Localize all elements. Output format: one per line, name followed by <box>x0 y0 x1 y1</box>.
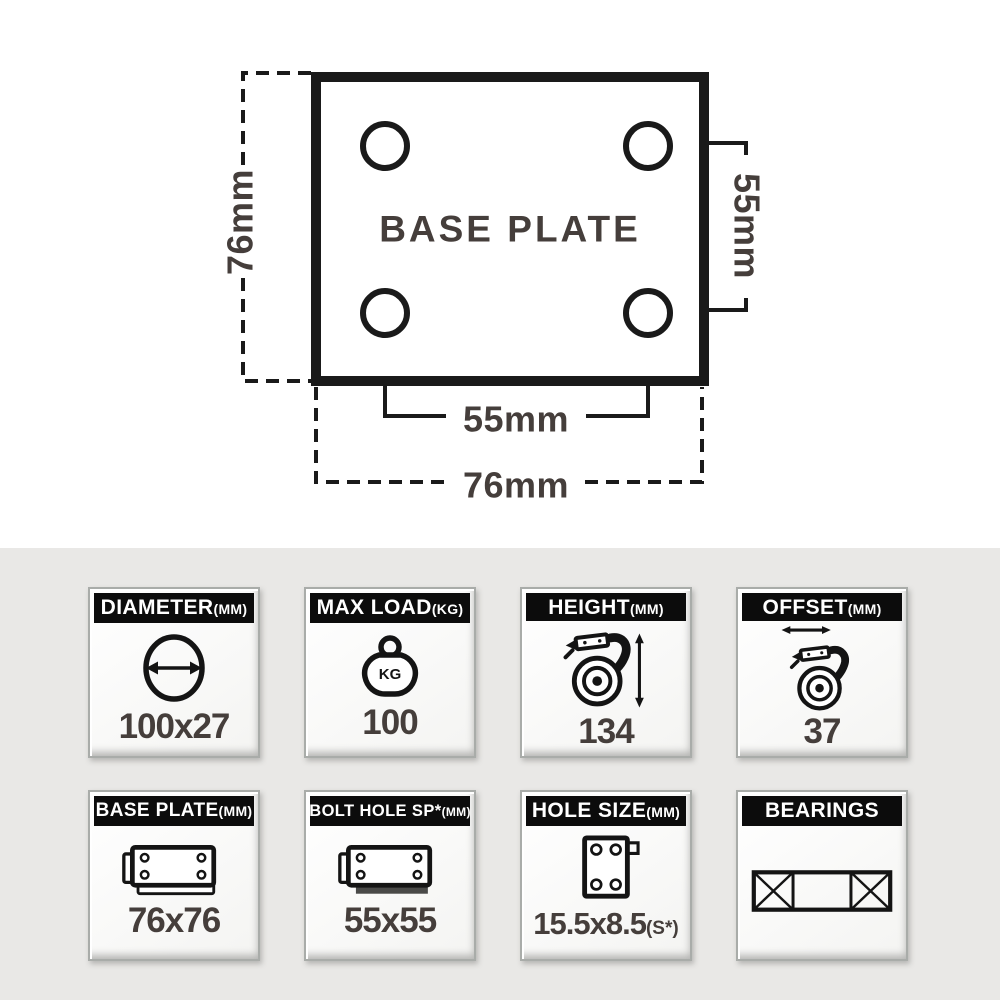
base-plate-diagram: BASE PLATE 76mm 55mm 55mm 76mm <box>0 0 1000 548</box>
left-dimension-label: 76mm <box>220 169 261 275</box>
card-value: 100x27 <box>119 709 230 745</box>
card-header: BEARINGS <box>742 796 902 826</box>
card-header: MAX LOAD(KG) <box>310 593 470 623</box>
hole-size-value: 15.5x8.5 <box>533 906 646 942</box>
bolt-hole-bottom-left <box>363 291 407 335</box>
card-value: 134 <box>578 714 633 750</box>
spec-card-bolt-hole-spacing: BOLT HOLE SP*(MM) 55x55 <box>304 790 476 961</box>
spec-card-offset: OFFSET(MM) <box>736 587 908 758</box>
bolt-hole-top-right <box>626 124 670 168</box>
hole-size-suffix: (S*) <box>646 911 679 947</box>
card-value: 76x76 <box>128 903 220 939</box>
card-title: DIAMETER <box>101 593 214 623</box>
card-body: KG 100 <box>306 623 474 756</box>
card-title: BASE PLATE <box>96 796 219 826</box>
plate-title: BASE PLATE <box>379 209 641 250</box>
spec-card-height: HEIGHT(MM) <box>520 587 692 758</box>
card-body: 55x55 <box>306 826 474 959</box>
card-value: 37 <box>804 714 841 750</box>
card-header: BOLT HOLE SP*(MM) <box>310 796 470 826</box>
bearing-icon <box>751 869 893 913</box>
card-title: OFFSET <box>762 593 847 621</box>
card-value: 15.5x8.5(S*) <box>533 906 678 947</box>
card-header: HEIGHT(MM) <box>526 593 686 621</box>
diameter-icon <box>136 630 212 706</box>
card-unit: (KG) <box>432 601 464 617</box>
card-body <box>738 826 906 959</box>
bolt-hole-top-left <box>363 124 407 168</box>
card-header: BASE PLATE(MM) <box>94 796 254 826</box>
card-value: 100 <box>362 705 417 741</box>
spec-card-diameter: DIAMETER(MM) 100x27 <box>88 587 260 758</box>
plate-width-label: 76mm <box>463 465 569 506</box>
caster-height-icon <box>556 623 656 711</box>
vertical-arrow <box>635 634 644 708</box>
card-header: OFFSET(MM) <box>742 593 902 621</box>
card-body: 37 <box>738 621 906 756</box>
card-header: DIAMETER(MM) <box>94 593 254 623</box>
caster-offset-icon <box>772 623 872 711</box>
card-unit: (MM) <box>646 804 680 820</box>
bolt-spacing-label: 55mm <box>463 399 569 440</box>
card-unit: (MM) <box>219 803 253 819</box>
card-body: 76x76 <box>90 826 258 959</box>
card-body: 15.5x8.5(S*) <box>522 826 690 959</box>
kg-icon-label: KG <box>379 666 402 683</box>
card-unit: (MM) <box>848 601 882 617</box>
card-unit: (MM) <box>630 601 664 617</box>
card-header: HOLE SIZE(MM) <box>526 796 686 826</box>
right-dimension-label: 55mm <box>727 173 768 279</box>
spec-card-base-plate: BASE PLATE(MM) 76x76 <box>88 790 260 961</box>
hole-size-icon <box>570 835 642 903</box>
caster-spec-sheet: BASE PLATE 76mm 55mm 55mm 76mm DIAMETER(… <box>0 0 1000 1000</box>
card-title: BEARINGS <box>765 796 879 826</box>
spec-card-max-load: MAX LOAD(KG) KG 100 <box>304 587 476 758</box>
card-value: 55x55 <box>344 903 436 939</box>
card-unit: (MM) <box>442 805 470 819</box>
card-title: MAX LOAD <box>317 593 432 623</box>
card-title: BOLT HOLE SP* <box>310 796 442 826</box>
bolt-hole-bottom-right <box>626 291 670 335</box>
horizontal-arrow <box>782 626 831 634</box>
card-body: 134 <box>522 621 690 756</box>
spec-card-hole-size: HOLE SIZE(MM) 15.5x8.5(S*) <box>520 790 692 961</box>
kettlebell-weight-icon: KG <box>350 634 430 702</box>
bolt-hole-spacing-icon <box>337 842 443 900</box>
spec-card-bearings: BEARINGS <box>736 790 908 961</box>
card-title: HEIGHT <box>548 593 630 621</box>
card-body: 100x27 <box>90 623 258 756</box>
card-title: HOLE SIZE <box>532 796 646 826</box>
base-plate-icon <box>121 842 227 900</box>
card-unit: (MM) <box>214 601 248 617</box>
spec-card-section: DIAMETER(MM) 100x27 MAX LOAD(KG) <box>0 548 1000 1000</box>
